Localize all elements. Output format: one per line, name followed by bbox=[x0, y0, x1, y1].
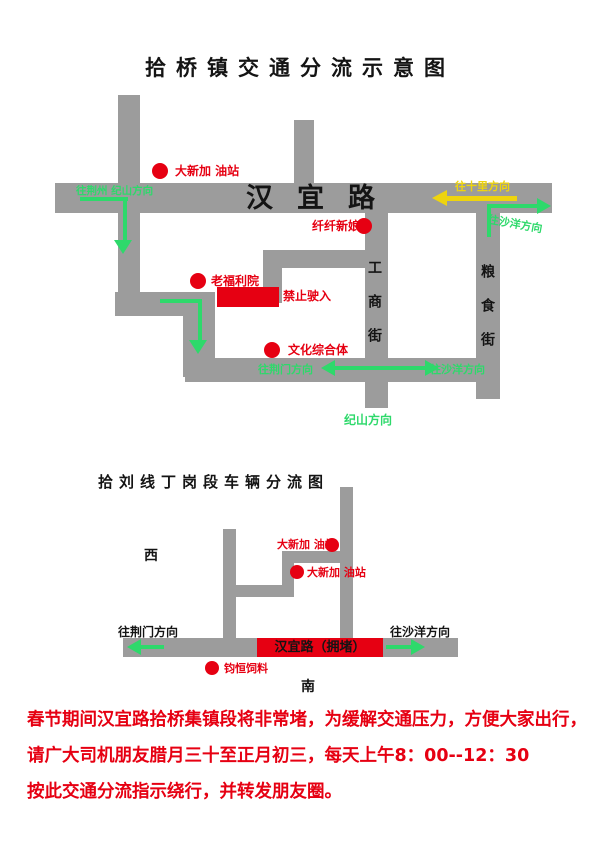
lower-connector-road bbox=[223, 585, 294, 597]
to-shili-label: 往十里方向 bbox=[455, 181, 510, 192]
feed-store-label: 钧恒饲料 bbox=[224, 663, 268, 674]
arrow-shaft bbox=[80, 197, 128, 201]
map2-to-shayang-label: 往沙洋方向 bbox=[390, 626, 450, 638]
arrow-shaft bbox=[123, 197, 127, 243]
congested-road-label: 汉宜路（拥堵） bbox=[257, 641, 383, 654]
arrow-left-icon bbox=[127, 639, 141, 655]
arrow-down-icon bbox=[114, 240, 132, 254]
notice-line-2: 请广大司机朋友腊月三十至正月初三，每天上午8：00--12：30 bbox=[27, 748, 529, 766]
arrow-shaft bbox=[140, 645, 164, 649]
arrow-right-icon bbox=[537, 198, 551, 214]
to-jingmen-label: 往荆门方向 bbox=[258, 364, 313, 375]
arrow-left-icon bbox=[321, 360, 335, 376]
north-middle-road bbox=[294, 120, 314, 183]
arrow-shaft bbox=[447, 196, 517, 201]
hanyi-road-label: 汉宜路 bbox=[246, 185, 399, 212]
map1-title: 拾桥镇交通分流示意图 bbox=[0, 57, 600, 78]
liangshi-street-label: 粮食街 bbox=[480, 264, 494, 366]
culture-complex-dot bbox=[264, 342, 280, 358]
to-shayang-south-label: 往沙洋方向 bbox=[430, 364, 485, 375]
gas-station-dot bbox=[152, 163, 168, 179]
culture-complex-label: 文化综合体 bbox=[288, 344, 348, 356]
welfare-home-label: 老福利院 bbox=[211, 275, 259, 287]
compass-south-label: 南 bbox=[301, 680, 315, 694]
gas-station-label: 大新加 油站 bbox=[175, 165, 239, 177]
no-entry-bar bbox=[217, 287, 279, 307]
arrow-right-icon bbox=[411, 639, 425, 655]
feed-store-dot bbox=[205, 661, 219, 675]
notice-line-3: 按此交通分流指示绕行，并转发朋友圈。 bbox=[27, 784, 342, 802]
arrow-shaft bbox=[160, 299, 202, 303]
arrow-shaft bbox=[386, 645, 412, 649]
arrow-left-yellow-icon bbox=[432, 190, 447, 206]
north-west-side-road bbox=[118, 95, 140, 183]
no-entry-label: 禁止驶入 bbox=[283, 290, 331, 302]
arrow-shaft bbox=[198, 299, 202, 343]
compass-west-label: 西 bbox=[144, 549, 158, 563]
jishan-direction-label: 纪山方向 bbox=[344, 414, 392, 426]
traffic-diversion-poster: 拾桥镇交通分流示意图 汉宜路 工商街 粮食街 大新加 油站 纤纤新娘 老福利院 … bbox=[0, 0, 600, 856]
arrow-shaft bbox=[487, 204, 539, 208]
gas-station-1-dot bbox=[325, 538, 339, 552]
gongshang-street-label: 工商街 bbox=[367, 260, 381, 362]
arrow-down-icon bbox=[189, 340, 207, 354]
gas-station-2-dot bbox=[290, 565, 304, 579]
gas-station-2-label: 大新加 油站 bbox=[307, 567, 366, 578]
bride-shop-label: 纤纤新娘 bbox=[312, 220, 360, 232]
arrow-shaft bbox=[335, 366, 427, 370]
map2-title: 拾刘线丁岗段车辆分流图 bbox=[98, 475, 329, 490]
to-jingzhou-jishan-label: 往荆州 纪山方向 bbox=[76, 186, 153, 197]
map2-to-jingmen-label: 往荆门方向 bbox=[118, 626, 178, 638]
notice-line-1: 春节期间汉宜路拾桥集镇段将非常堵，为缓解交通压力，方便大家出行， bbox=[27, 712, 587, 730]
welfare-home-dot bbox=[190, 273, 206, 289]
